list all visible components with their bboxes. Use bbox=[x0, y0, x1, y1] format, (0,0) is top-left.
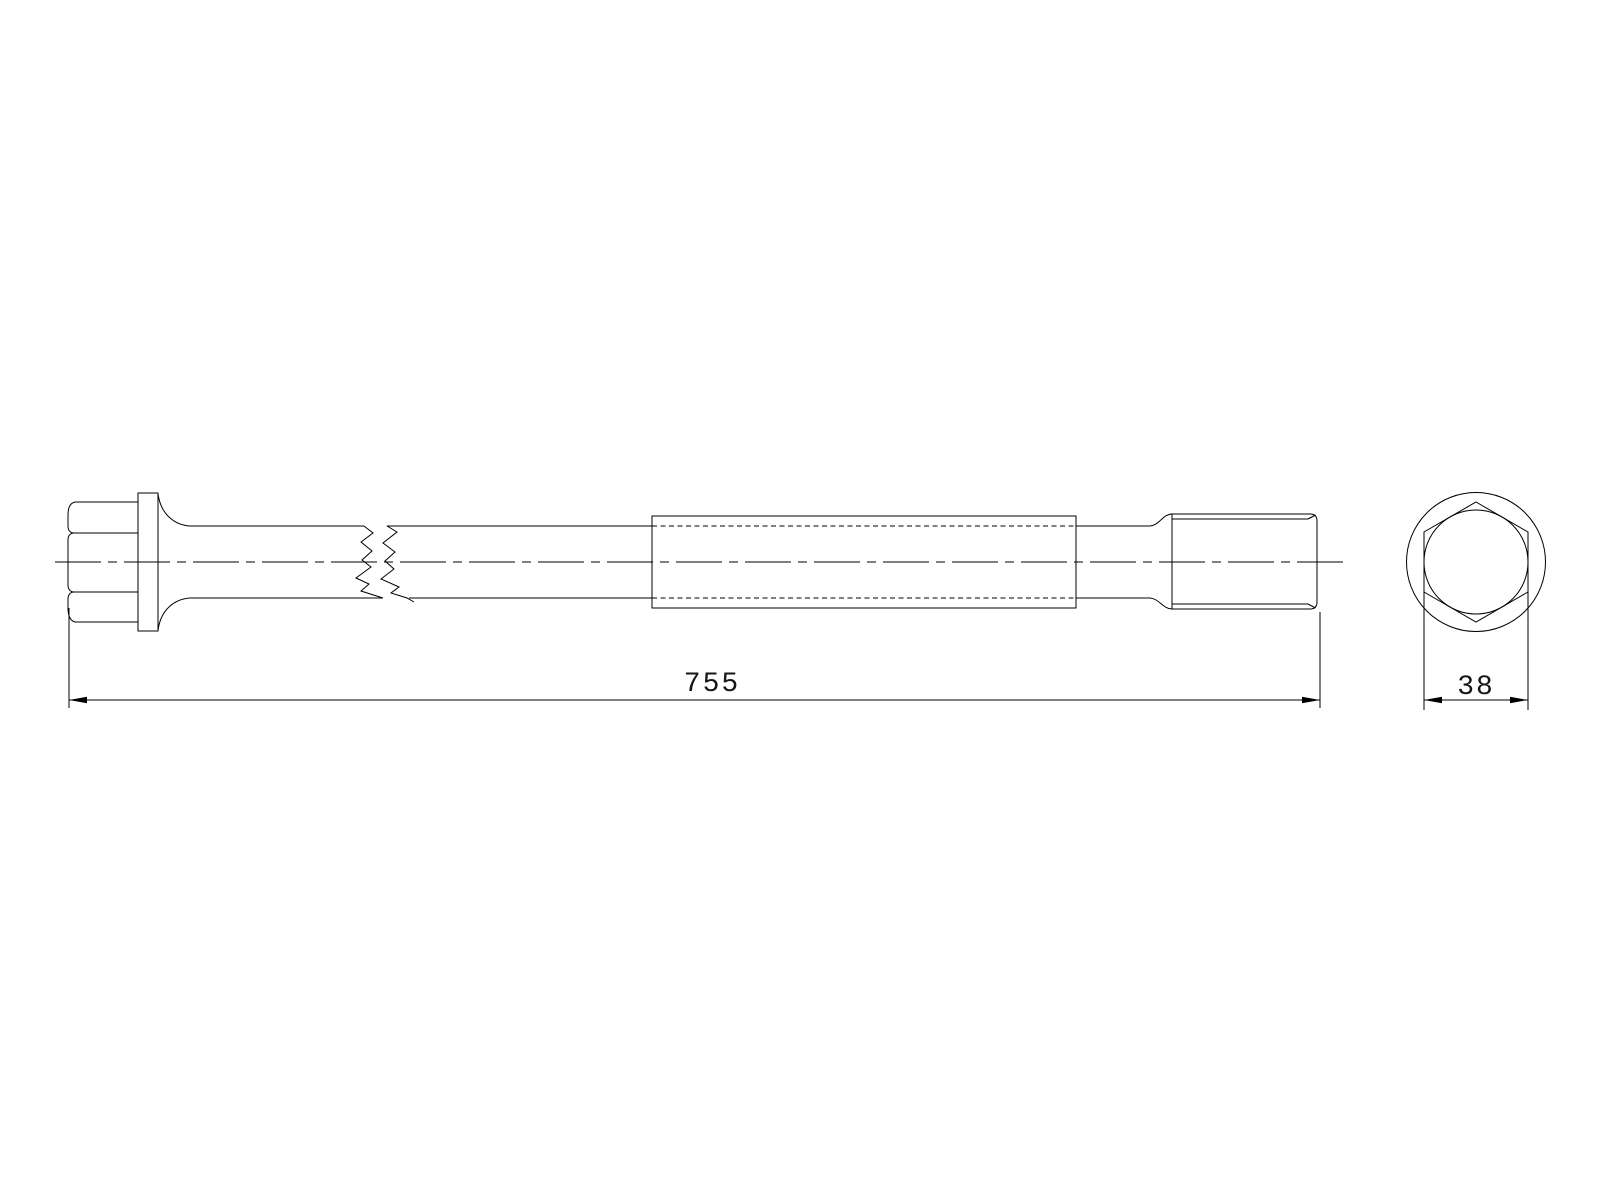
sleeve-section bbox=[652, 516, 1076, 608]
arrowhead-right bbox=[1302, 697, 1320, 703]
overall-length-value: 755 bbox=[684, 669, 740, 700]
flange bbox=[138, 493, 158, 631]
bolt-end-view bbox=[1407, 493, 1546, 632]
width-across-flats-value: 38 bbox=[1457, 672, 1495, 703]
thread-runout-bottom bbox=[1150, 598, 1172, 609]
drawing-canvas: 755 38 bbox=[0, 0, 1600, 1200]
lower-fillet bbox=[158, 598, 190, 630]
thread-chamfer-top bbox=[1308, 515, 1316, 519]
bolt-side-view bbox=[55, 493, 1345, 631]
arrowhead-left bbox=[69, 697, 87, 703]
arrowhead-left bbox=[1424, 697, 1442, 703]
sleeve-outline bbox=[652, 516, 1076, 608]
arrowhead-right bbox=[1510, 697, 1528, 703]
hexagon bbox=[1424, 502, 1528, 622]
thread-runout-top bbox=[1150, 514, 1172, 526]
technical-drawing: 755 38 bbox=[0, 0, 1600, 1200]
break-zigzag-right bbox=[381, 526, 414, 602]
dimension-overall-length: 755 bbox=[69, 608, 1320, 708]
break-symbol bbox=[356, 526, 414, 602]
upper-fillet bbox=[158, 494, 190, 526]
thread-chamfer-bottom bbox=[1308, 604, 1316, 608]
